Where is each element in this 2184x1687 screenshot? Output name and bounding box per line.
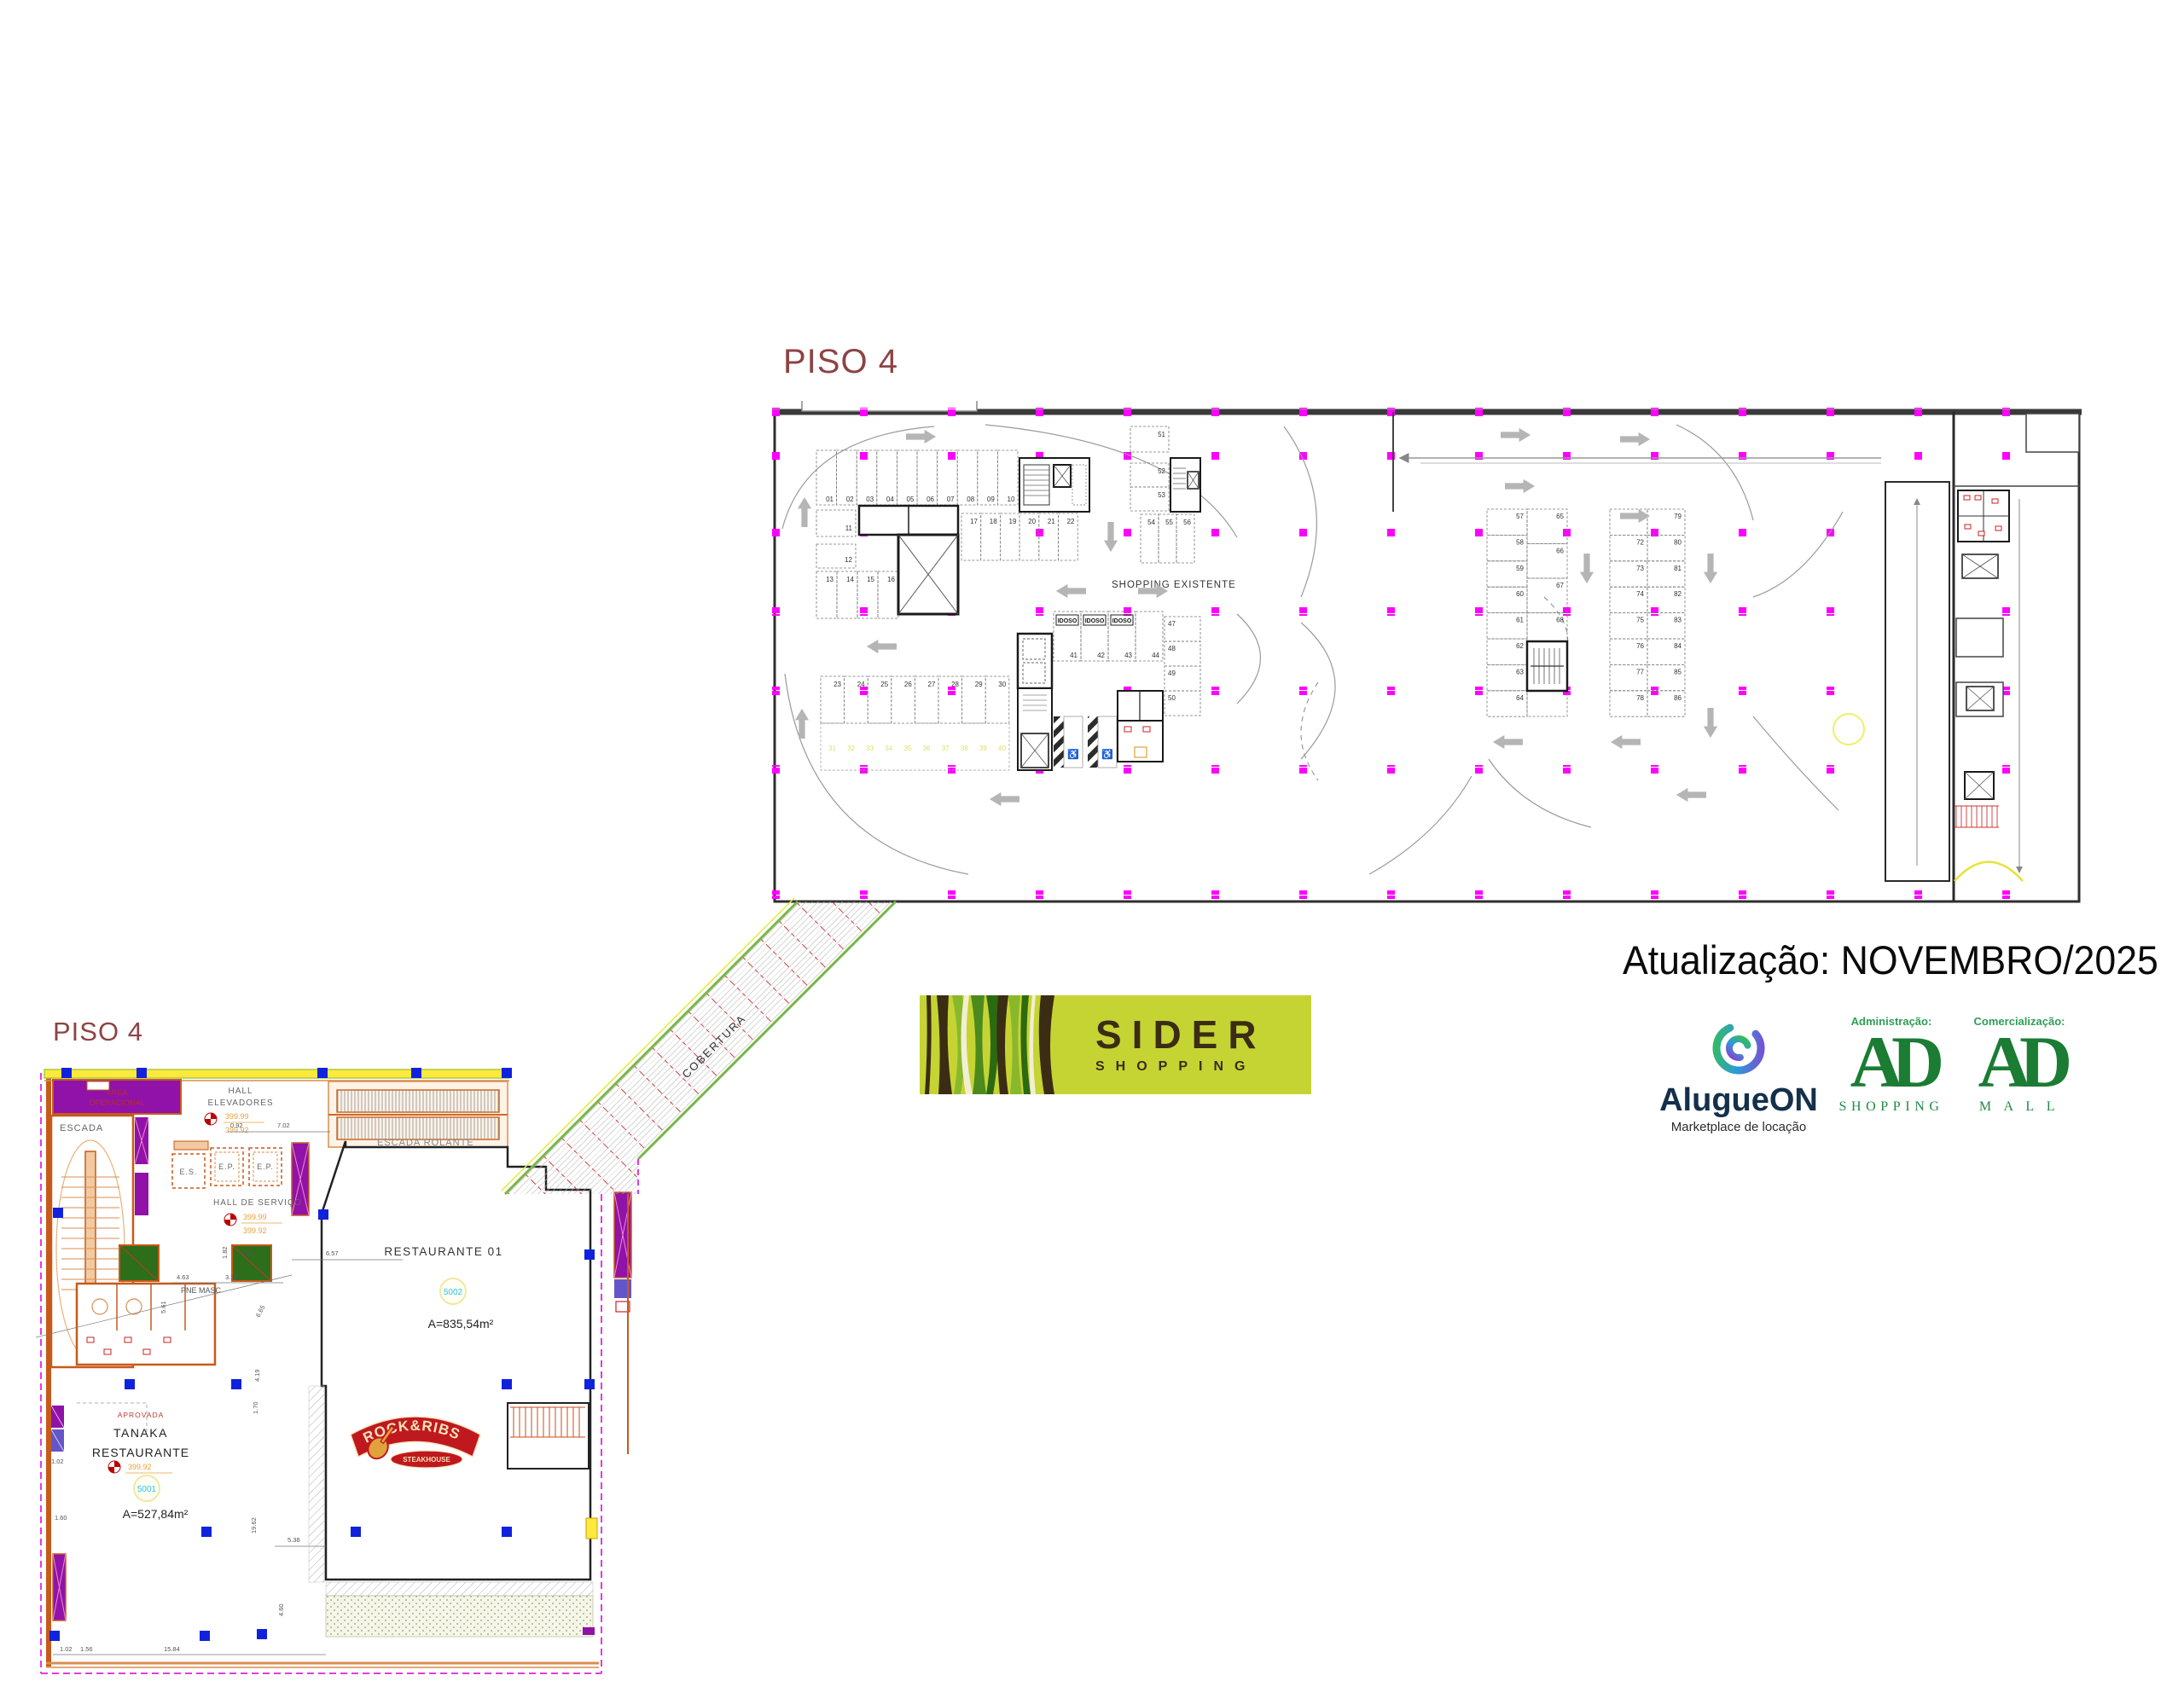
svg-text:E.P.: E.P. <box>257 1162 274 1171</box>
svg-text:36: 36 <box>923 745 931 752</box>
restaurante-01-room: RESTAURANTE 01 5002 A=835,54m² <box>322 1141 590 1580</box>
svg-text:05: 05 <box>906 496 914 503</box>
svg-text:04: 04 <box>886 496 894 503</box>
top-strip <box>44 1068 512 1081</box>
svg-text:50: 50 <box>1168 694 1176 702</box>
svg-text:83: 83 <box>1674 617 1682 624</box>
alugueon-icon <box>1707 1017 1770 1080</box>
svg-text:59: 59 <box>1516 565 1524 572</box>
svg-text:79: 79 <box>1674 513 1682 520</box>
ad-mall-sub: M A L L <box>1955 1099 2083 1115</box>
ad-shopping-logo: Administração: AD SHOPPING <box>1827 1015 1955 1115</box>
svg-text:49: 49 <box>1168 670 1176 677</box>
level-fan-icon-2 <box>224 1214 236 1226</box>
svg-text:47: 47 <box>1168 620 1176 628</box>
svg-text:55: 55 <box>1165 519 1173 526</box>
walkway-hatch <box>505 901 896 1194</box>
svg-text:23: 23 <box>834 681 841 688</box>
svg-text:44: 44 <box>1152 652 1159 659</box>
svg-text:01: 01 <box>826 496 834 503</box>
floorplan-sheet: PISO 4 <box>0 0 2184 1687</box>
level-fan-icon <box>205 1113 217 1125</box>
svg-text:02: 02 <box>846 496 854 503</box>
svg-text:ESCADA: ESCADA <box>60 1123 103 1133</box>
svg-text:66: 66 <box>1556 548 1564 555</box>
svg-text:399.92: 399.92 <box>128 1463 152 1471</box>
svg-text:RESTAURANTE 01: RESTAURANTE 01 <box>384 1245 502 1258</box>
svg-text:12: 12 <box>845 556 852 564</box>
svg-text:67: 67 <box>1556 582 1564 589</box>
svg-text:1.02: 1.02 <box>60 1645 73 1653</box>
sider-shopping-logo: SIDER SHOPPING <box>920 995 1311 1094</box>
svg-text:74: 74 <box>1636 590 1644 598</box>
svg-text:29: 29 <box>975 681 983 688</box>
svg-text:♿: ♿ <box>1101 749 1113 760</box>
svg-text:1.02: 1.02 <box>51 1458 64 1465</box>
svg-text:OPERACIONAL: OPERACIONAL <box>89 1099 144 1107</box>
svg-text:APROVADA: APROVADA <box>118 1411 165 1419</box>
svg-text:09: 09 <box>987 496 995 503</box>
svg-text:76: 76 <box>1636 642 1644 650</box>
svg-text:06: 06 <box>926 496 934 503</box>
svg-text:RESTAURANTE: RESTAURANTE <box>92 1446 189 1459</box>
svg-text:4.60: 4.60 <box>277 1603 285 1616</box>
svg-text:41: 41 <box>1070 652 1077 659</box>
shopping-existente-label: SHOPPING EXISTENTE <box>1112 580 1236 590</box>
svg-text:84: 84 <box>1674 642 1682 650</box>
svg-text:5002: 5002 <box>444 1288 463 1297</box>
svg-text:64: 64 <box>1516 694 1524 702</box>
svg-text:30: 30 <box>998 681 1006 688</box>
svg-text:07: 07 <box>947 496 955 503</box>
svg-text:5001: 5001 <box>137 1485 157 1494</box>
svg-text:399.92: 399.92 <box>243 1226 267 1235</box>
restaurant-stair <box>508 1403 589 1469</box>
svg-text:32: 32 <box>847 745 855 752</box>
core-x-room <box>898 535 958 614</box>
svg-text:A=835,54m²: A=835,54m² <box>428 1317 494 1330</box>
svg-text:ÁREA: ÁREA <box>107 1088 128 1097</box>
svg-text:399.99: 399.99 <box>243 1213 267 1221</box>
svg-text:22: 22 <box>1067 518 1075 525</box>
svg-text:38: 38 <box>961 745 968 752</box>
svg-text:0.92: 0.92 <box>230 1122 243 1129</box>
svg-text:56: 56 <box>1183 519 1191 526</box>
svg-text:HALL: HALL <box>228 1087 253 1096</box>
svg-text:ELEVADORES: ELEVADORES <box>207 1099 273 1108</box>
svg-text:52: 52 <box>1158 467 1165 475</box>
stair-core-b <box>1170 458 1200 512</box>
svg-text:65: 65 <box>1556 513 1564 520</box>
update-date-text: Atualização: NOVEMBRO/2025 <box>1623 936 2158 983</box>
svg-text:A=527,84m²: A=527,84m² <box>123 1507 189 1521</box>
plan-top-title: PISO 4 <box>783 343 898 381</box>
svg-text:E.S.: E.S. <box>179 1168 197 1176</box>
ad-mall-monogram: AD <box>1955 1028 2083 1098</box>
service-wc <box>1958 490 2009 542</box>
svg-text:75: 75 <box>1636 617 1644 624</box>
svg-text:26: 26 <box>904 681 912 688</box>
svg-text:80: 80 <box>1674 538 1682 546</box>
svg-text:1.60: 1.60 <box>55 1514 67 1522</box>
svg-text:13: 13 <box>826 576 834 583</box>
svg-text:TANAKA: TANAKA <box>113 1426 168 1440</box>
svg-text:15.84: 15.84 <box>164 1645 180 1653</box>
svg-text:20: 20 <box>1028 518 1036 525</box>
svg-text:37: 37 <box>942 745 950 752</box>
ad-shopping-sub: SHOPPING <box>1827 1099 1955 1115</box>
svg-text:16: 16 <box>887 576 895 583</box>
svg-text:18: 18 <box>990 518 997 525</box>
corner-wall-strip <box>614 1192 631 1454</box>
svg-text:HALL DE SERVIÇO: HALL DE SERVIÇO <box>213 1198 302 1208</box>
elevator-core-mid <box>1018 634 1052 770</box>
plan-bottom-title: PISO 4 <box>53 1017 143 1047</box>
rockribs-logo: ROCK&RIBS STEAKHOUSE <box>343 1394 490 1470</box>
svg-text:17: 17 <box>970 518 978 525</box>
svg-text:25: 25 <box>880 681 888 688</box>
svg-text:19: 19 <box>1008 518 1016 525</box>
level-fan-icon-3 <box>108 1461 120 1473</box>
svg-text:5.38: 5.38 <box>288 1536 300 1544</box>
svg-text:6.65: 6.65 <box>254 1304 267 1319</box>
svg-text:35: 35 <box>903 745 911 752</box>
svg-text:62: 62 <box>1516 642 1524 650</box>
svg-text:61: 61 <box>1516 617 1524 624</box>
svg-text:48: 48 <box>1168 645 1176 652</box>
svg-text:1.82: 1.82 <box>221 1246 229 1259</box>
svg-text:28: 28 <box>951 681 959 688</box>
svg-text:53: 53 <box>1158 491 1165 499</box>
svg-text:11: 11 <box>845 525 853 532</box>
svg-text:85: 85 <box>1674 668 1682 675</box>
svg-text:1.56: 1.56 <box>80 1645 93 1653</box>
svg-text:63: 63 <box>1516 668 1524 675</box>
svg-text:68: 68 <box>1556 617 1564 624</box>
left-wall-strips <box>51 1406 66 1620</box>
svg-text:IDOSO: IDOSO <box>1112 618 1132 624</box>
svg-text:60: 60 <box>1516 590 1524 598</box>
svg-text:27: 27 <box>927 681 935 688</box>
svg-text:14: 14 <box>846 576 854 583</box>
svg-text:42: 42 <box>1097 652 1105 659</box>
svg-text:4.19: 4.19 <box>253 1369 261 1382</box>
hall-servico: HALL DE SERVIÇO 399.99 399.92 <box>213 1198 302 1235</box>
tanaka-restaurante: APROVADA TANAKA RESTAURANTE 399.92 5001 … <box>92 1411 189 1521</box>
svg-text:57: 57 <box>1516 513 1524 520</box>
svg-text:1.70: 1.70 <box>252 1401 259 1414</box>
svg-text:72: 72 <box>1636 538 1644 546</box>
svg-text:33: 33 <box>866 745 874 752</box>
stair-core-c <box>1527 641 1567 691</box>
svg-text:10: 10 <box>1007 496 1014 503</box>
svg-text:51: 51 <box>1158 431 1165 438</box>
svg-text:54: 54 <box>1147 519 1155 526</box>
svg-text:21: 21 <box>1048 518 1055 525</box>
alugueon-tagline: Marketplace de locação <box>1653 1120 1824 1134</box>
sider-grass-icon <box>920 995 1073 1094</box>
svg-text:IDOSO: IDOSO <box>1085 618 1105 624</box>
svg-text:39: 39 <box>979 745 987 752</box>
svg-text:34: 34 <box>885 745 892 752</box>
svg-text:4.63: 4.63 <box>177 1273 189 1281</box>
svg-text:08: 08 <box>967 496 974 503</box>
wc-mid <box>1118 691 1163 762</box>
svg-text:E.P.: E.P. <box>218 1162 235 1171</box>
area-operacional: ÁREA OPERACIONAL <box>53 1080 181 1114</box>
svg-text:399.99: 399.99 <box>225 1112 249 1121</box>
svg-text:31: 31 <box>828 745 836 752</box>
parking-plan: 01 02 03 04 05 06 07 08 09 10 11 12 <box>772 401 2082 913</box>
svg-text:77: 77 <box>1636 668 1644 675</box>
stair-core-a <box>1019 458 1089 512</box>
svg-text:78: 78 <box>1636 694 1644 702</box>
svg-text:03: 03 <box>866 496 874 503</box>
svg-text:58: 58 <box>1516 538 1524 546</box>
svg-text:IDOSO: IDOSO <box>1058 618 1077 624</box>
ad-shopping-monogram: AD <box>1827 1028 1955 1098</box>
svg-text:0.92: 0.92 <box>241 1249 253 1257</box>
svg-text:81: 81 <box>1674 565 1682 572</box>
alugueon-name: AlugueON <box>1653 1084 1824 1116</box>
svg-text:73: 73 <box>1636 565 1644 572</box>
sider-sub: SHOPPING <box>1095 1059 1311 1075</box>
covered-walkway: COBERTURA <box>469 883 913 1207</box>
svg-text:3.30: 3.30 <box>225 1273 238 1281</box>
svg-text:40: 40 <box>998 745 1006 752</box>
svg-text:24: 24 <box>857 681 865 688</box>
svg-text:7.02: 7.02 <box>277 1122 290 1129</box>
svg-text:19.62: 19.62 <box>250 1517 258 1533</box>
svg-text:82: 82 <box>1674 590 1682 598</box>
sider-name: SIDER <box>1095 1015 1311 1054</box>
svg-text:43: 43 <box>1124 652 1132 659</box>
svg-text:15: 15 <box>867 576 874 583</box>
alugueon-logo: AlugueON Marketplace de locação <box>1653 1017 1824 1134</box>
svg-text:86: 86 <box>1674 694 1682 702</box>
svg-text:♿: ♿ <box>1067 749 1079 760</box>
ad-mall-logo: Comercialização: AD M A L L <box>1955 1015 2083 1115</box>
svg-text:STEAKHOUSE: STEAKHOUSE <box>403 1456 450 1464</box>
svg-text:6.57: 6.57 <box>326 1249 339 1257</box>
central-room <box>859 506 958 535</box>
